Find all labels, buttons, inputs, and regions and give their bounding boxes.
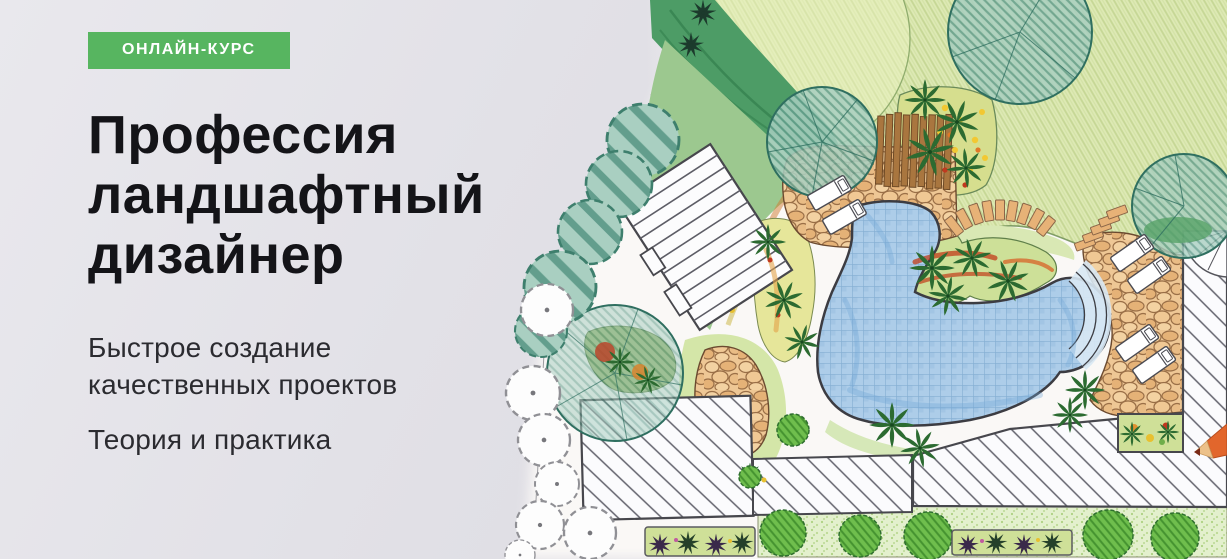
subtitle-projects: Быстрое создание качественных проектов (88, 329, 518, 403)
page-title: Профессия ландшафтный дизайнер (88, 105, 518, 285)
landscape-plan-illustration (500, 0, 1227, 559)
course-type-badge: ОНЛАЙН-КУРС (88, 32, 290, 69)
hero-section: ОНЛАЙН-КУРС Профессия ландшафтный дизайн… (0, 0, 1227, 559)
landscape-plan-svg (500, 0, 1227, 559)
subtitle-theory: Теория и практика (88, 421, 518, 458)
title-line-3: дизайнер (88, 225, 518, 285)
hero-text-block: ОНЛАЙН-КУРС Профессия ландшафтный дизайн… (88, 32, 518, 458)
terrace-deck (753, 455, 912, 515)
title-line-2: ландшафтный (88, 165, 518, 225)
title-line-1: Профессия (88, 105, 518, 165)
